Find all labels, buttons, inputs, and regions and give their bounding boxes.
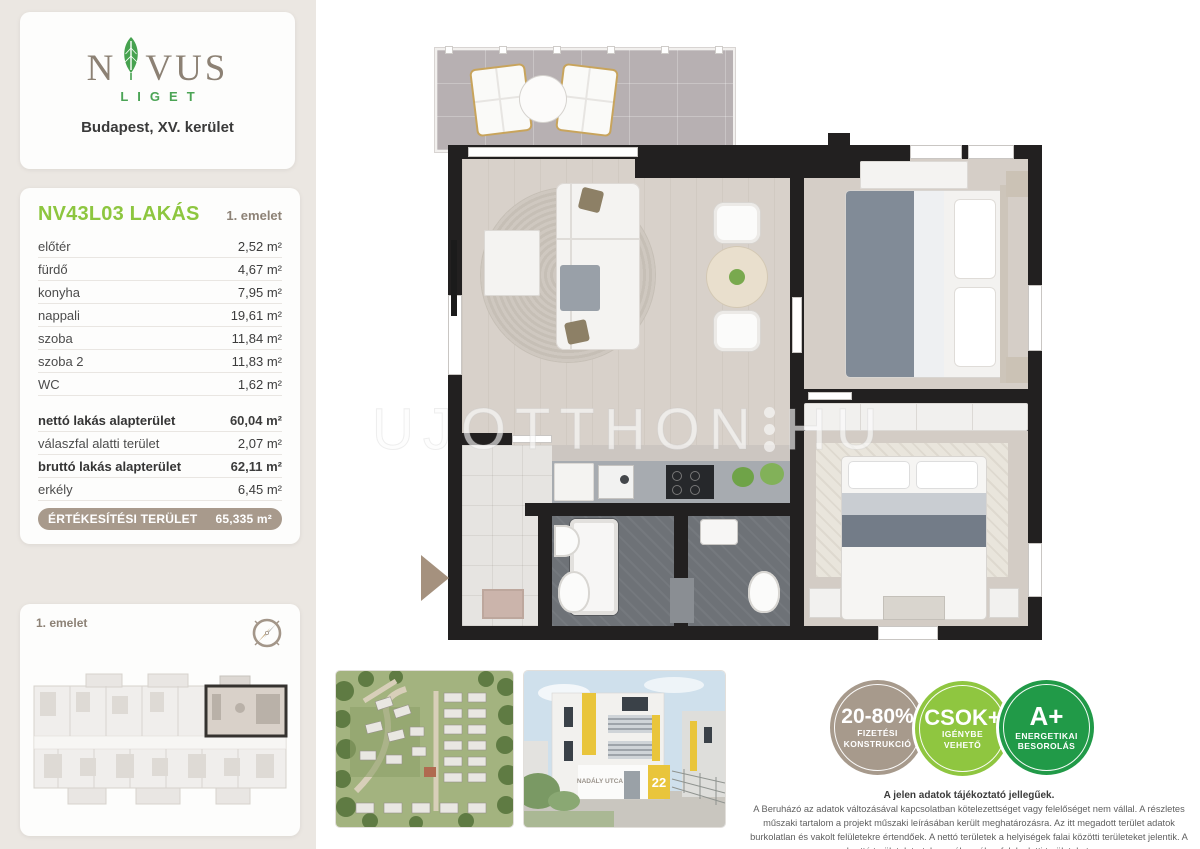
badge-big-text: CSOK+ [924,706,1000,729]
badge-line: FIZETÉSI [857,728,898,739]
coffee-table-icon [484,230,540,296]
room-row: konyha7,95 m² [38,281,282,304]
kitchen-cabinet [554,463,594,501]
badge-big-text: A+ [1030,703,1064,730]
kitchen-sink-icon [598,465,634,499]
project-location: Budapest, XV. kerület [20,119,295,136]
room-label: konyha [38,285,80,300]
kitchen-plant-icon [732,467,754,487]
watermark: UJOTTHON HU [372,396,887,463]
headboard [1000,185,1008,383]
summary-value: 60,04 m² [230,413,282,428]
room-area: 19,61 m² [231,308,282,323]
summary-value: 2,07 m² [238,436,282,451]
dining-chair-icon [714,311,760,351]
room-label: szoba 2 [38,354,84,369]
nightstand-icon [1006,357,1028,383]
room-label: előtér [38,239,71,254]
bed-pillow [954,199,996,279]
room-row: nappali19,61 m² [38,304,282,327]
bench-icon [884,597,944,619]
brand-logo: N VUS [20,36,295,87]
badge-big-text: 20-80% [841,706,913,728]
summary-row: bruttó lakás alapterület62,11 m² [38,455,282,478]
unit-floor: 1. emelet [226,208,282,223]
disclaimer-body: A Beruházó az adatok változásával kapcso… [740,803,1198,849]
bed-pillow [954,287,996,367]
hand-basin-icon [700,519,738,545]
watermark-text-left: UJOTTHON [372,396,760,463]
summary-row: nettó lakás alapterület60,04 m² [38,409,282,432]
badge-energy: A+ ENERGETIKAI BESOROLÁS [996,677,1097,778]
street-sign-text: NADÁLY UTCA [577,776,624,785]
leaf-icon [119,36,143,87]
nightstand-icon [810,589,840,617]
nightstand-icon [990,589,1018,617]
room-row: szoba11,84 m² [38,327,282,350]
room-area: 4,67 m² [238,262,282,277]
brand-subtitle: LIGET [20,89,295,104]
room-label: nappali [38,308,80,323]
logo-card: N VUS LIGET Budapest, XV. kerület [20,12,295,169]
disclaimer: A jelen adatok tájékoztató jellegűek. A … [740,790,1198,849]
brand-letter-n: N [87,50,117,87]
room-area: 7,95 m² [238,285,282,300]
balcony-table-icon [520,76,566,122]
watermark-dots [764,407,775,452]
kitchen-plant-icon [760,463,784,485]
summary-value: 6,45 m² [238,482,282,497]
tv-icon [451,240,457,316]
toilet-icon [748,571,780,613]
summary-row: válaszfal alatti terület2,07 m² [38,432,282,455]
floor-overview-plan [28,656,292,831]
badge-line: ENERGETIKAI [1015,731,1078,742]
room-area: 2,52 m² [238,239,282,254]
room-row: szoba 211,83 m² [38,350,282,373]
wardrobe-icon [860,161,968,189]
room-label: szoba [38,331,73,346]
brochure-page: N VUS LIGET Budapest, XV. kerület NV43L0… [0,0,1200,849]
table-plant-icon [729,269,745,285]
floor-overview-label: 1. emelet [36,616,87,630]
summary-label: válaszfal alatti terület [38,436,159,451]
room-label: fürdő [38,262,68,277]
unit-header: NV43L03 LAKÁS 1. emelet [38,203,282,226]
disclaimer-title: A jelen adatok tájékoztató jellegűek. [740,790,1198,801]
sale-area-value: 65,335 m² [215,512,272,526]
doormat-icon [482,589,524,619]
room-area: 11,84 m² [232,331,282,346]
summary-label: bruttó lakás alapterület [38,459,181,474]
room-row: WC1,62 m² [38,373,282,396]
floorplan [448,145,1042,640]
summary-value: 62,11 m² [231,459,282,474]
sofa-pillow [564,319,590,345]
dining-chair-icon [714,203,760,243]
bed-pillow [916,461,978,489]
watermark-text-right: HU [785,396,887,463]
building-render-photo: NADÁLY UTCA 22 [524,671,725,827]
room-row: előtér2,52 m² [38,235,282,258]
summary-row: erkély6,45 m² [38,478,282,501]
badge-line: BESOROLÁS [1018,741,1075,752]
compass-icon [246,612,288,659]
entrance-arrow-icon [421,555,449,601]
sofa-throw [560,265,600,311]
summary-section: nettó lakás alapterület60,04 m² válaszfa… [38,409,282,501]
summary-label: erkély [38,482,73,497]
sale-area-label: ÉRTÉKESÍTÉSI TERÜLET [48,512,197,526]
sale-area-pill: ÉRTÉKESÍTÉSI TERÜLET 65,335 m² [38,508,282,530]
brand-letters-rest: VUS [145,50,228,87]
floor-overview-card: 1. emelet [20,604,300,836]
badge-line: KONSTRUKCIÓ [844,739,912,750]
room-row: fürdő4,67 m² [38,258,282,281]
badge-line: VEHETŐ [944,740,981,751]
nightstand-icon [1006,171,1028,197]
bed-pillow [848,461,910,489]
street-number-text: 22 [652,775,666,790]
badge-line: IGÉNYBE [942,729,983,740]
aerial-site-photo [336,671,513,827]
unit-title: NV43L03 LAKÁS [38,203,200,226]
room-label: WC [38,377,60,392]
unit-data-card: NV43L03 LAKÁS 1. emelet előtér2,52 m² fü… [20,188,300,544]
balcony-terrace [435,48,735,152]
toilet-icon [558,571,590,613]
summary-label: nettó lakás alapterület [38,413,175,428]
room-area: 1,62 m² [238,377,282,392]
wall-living-bedroom1 [790,159,804,626]
room-area: 11,83 m² [232,354,282,369]
